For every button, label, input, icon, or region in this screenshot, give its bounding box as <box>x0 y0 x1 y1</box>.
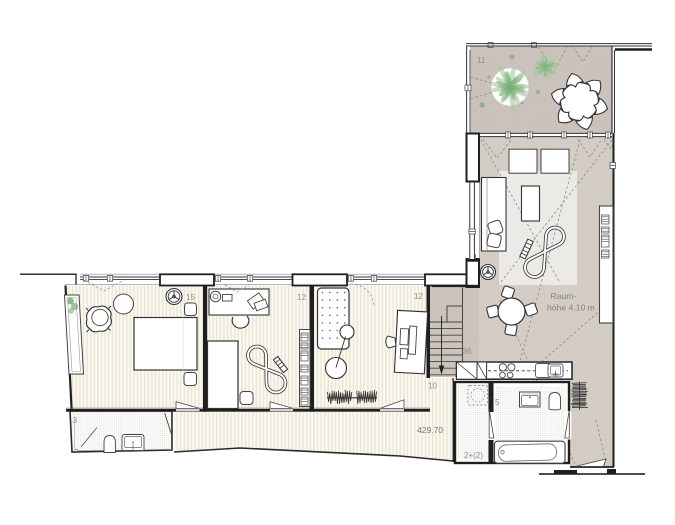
svg-text:höhe 4.10 m: höhe 4.10 m <box>547 303 595 313</box>
svg-text:12: 12 <box>297 293 306 302</box>
svg-text:12: 12 <box>414 292 423 301</box>
svg-text:10: 10 <box>428 382 437 391</box>
svg-text:3: 3 <box>73 416 78 425</box>
svg-text:15: 15 <box>186 293 195 302</box>
svg-text:Raum-: Raum- <box>551 291 577 301</box>
svg-text:5: 5 <box>495 398 500 407</box>
svg-text:429.70: 429.70 <box>417 425 443 435</box>
svg-text:36: 36 <box>463 347 472 356</box>
svg-text:11: 11 <box>477 56 486 65</box>
svg-text:2+(2): 2+(2) <box>464 451 483 460</box>
